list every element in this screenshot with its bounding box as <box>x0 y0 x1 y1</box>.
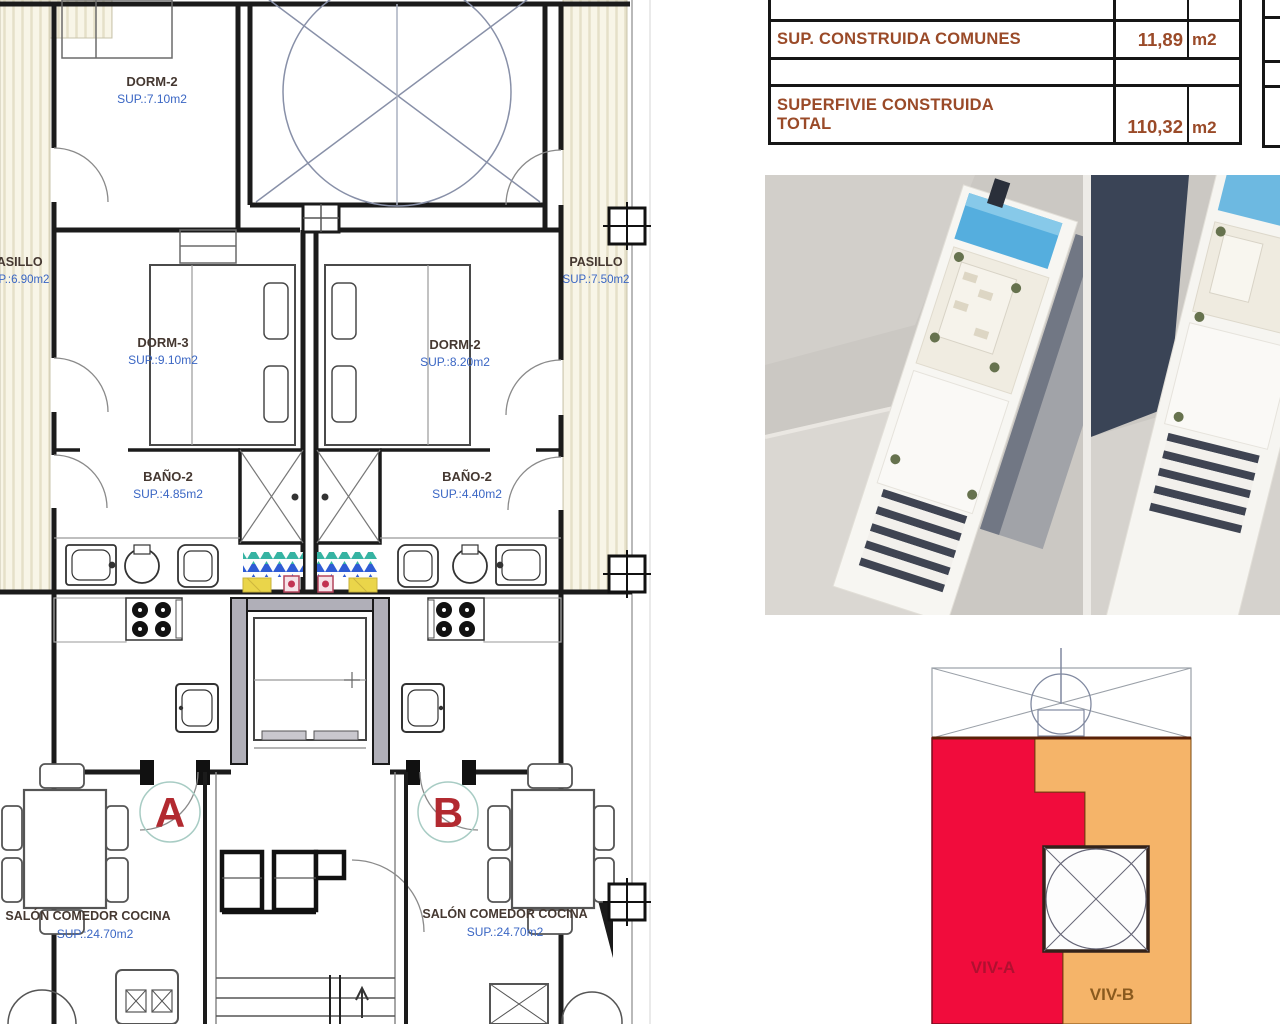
kitchen-left <box>54 598 218 732</box>
bed-dorm2-top <box>62 0 236 263</box>
showers <box>240 450 380 543</box>
room-name: DORM-2 <box>429 337 480 352</box>
table-row-total: SUPERFIVIE CONSTRUIDA TOTAL 110,32 m2 <box>768 84 1242 145</box>
duct-shaft <box>303 204 339 232</box>
key-plan: VIV-A VIV-B <box>928 640 1195 1024</box>
stair-block <box>205 772 406 1024</box>
room-name: SALÓN COMEDOR COCINA <box>422 906 587 921</box>
room-name: BAÑO-2 <box>442 469 492 484</box>
door-jambs <box>140 760 476 785</box>
kitchen-right <box>402 598 561 732</box>
row-value: 110,32 <box>1113 87 1187 142</box>
keyplan-patio <box>1044 847 1148 951</box>
room-sup: SUP.:4.85m2 <box>133 487 203 501</box>
room-sup: SUP.:8.20m2 <box>420 355 490 369</box>
section-symbol <box>932 648 1191 738</box>
table-row-partial <box>768 0 1242 19</box>
room-sup: SUP.:9.10m2 <box>128 353 198 367</box>
adjacent-table-fragment <box>1262 0 1280 148</box>
room-name: DORM-3 <box>137 335 188 350</box>
patio-symbol <box>256 0 540 206</box>
row-label-line1: SUPERFIVIE CONSTRUIDA <box>777 96 1107 115</box>
table-row-gap <box>768 60 1242 84</box>
room-name: PASILLO <box>0 255 43 269</box>
mosaic-tiles <box>243 552 377 592</box>
unit-b-label: B <box>433 789 463 836</box>
floor-plan-drawing: A B <box>0 0 660 1024</box>
room-name: DORM-2 <box>126 74 177 89</box>
room-name: SALÓN COMEDOR COCINA <box>5 908 170 923</box>
room-sup: SUP.:6.90m2 <box>0 274 49 286</box>
room-sup: SUP.:24.70m2 <box>57 927 134 941</box>
room-sup: SUP.:24.70m2 <box>467 925 544 939</box>
bath-fixtures <box>54 538 561 587</box>
row-value: 11,89 <box>1113 22 1187 57</box>
unit-a-label: A <box>155 789 185 836</box>
room-sup: SUP.:4.40m2 <box>432 487 502 501</box>
door-arcs <box>54 148 561 932</box>
room-name: PASILLO <box>569 255 623 269</box>
row-unit: m2 <box>1187 22 1239 57</box>
room-sup: SUP.:7.50m2 <box>563 274 630 286</box>
room-name: BAÑO-2 <box>143 469 193 484</box>
building-3d-render <box>765 175 1280 615</box>
render-divider <box>1083 175 1091 615</box>
viv-a-label: VIV-A <box>971 958 1015 977</box>
row-label-line2: TOTAL <box>777 115 1107 134</box>
row-label: SUP. CONSTRUIDA COMUNES <box>771 22 1113 57</box>
table-row-comunes: SUP. CONSTRUIDA COMUNES 11,89 m2 <box>768 19 1242 60</box>
room-sup: SUP.:7.10m2 <box>117 92 187 106</box>
surface-summary-table: SUP. CONSTRUIDA COMUNES 11,89 m2 SUPERFI… <box>768 0 1242 145</box>
unit-entries: A B <box>140 782 478 842</box>
plan-sheet: A B <box>0 0 1280 1024</box>
elevator <box>231 598 389 764</box>
viv-b-label: VIV-B <box>1090 985 1134 1004</box>
row-unit: m2 <box>1187 87 1239 142</box>
